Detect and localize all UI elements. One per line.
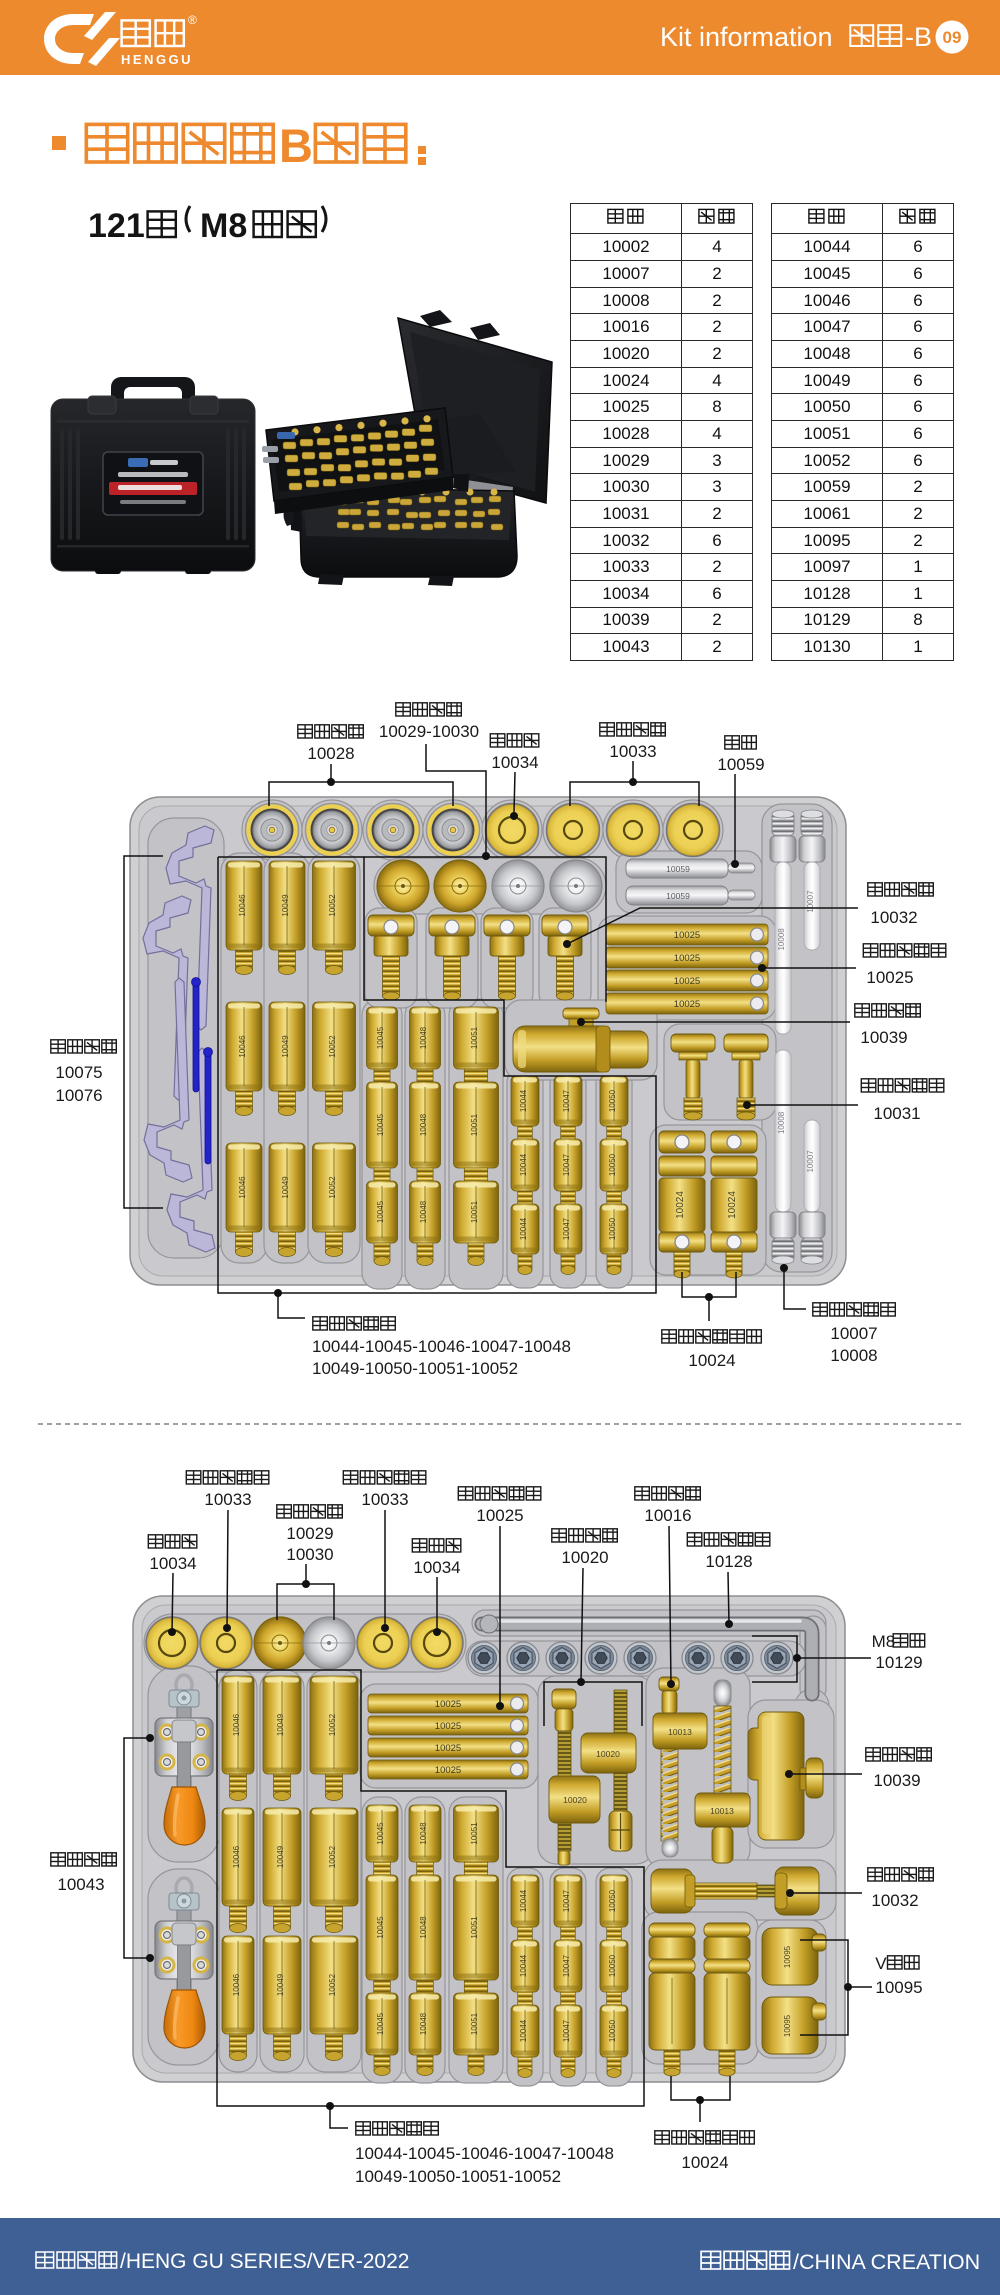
- svg-text:10025: 10025: [435, 1699, 461, 1710]
- svg-text:10034: 10034: [149, 1554, 196, 1573]
- svg-text:10051: 10051: [470, 1026, 479, 1049]
- svg-text:10008: 10008: [777, 928, 786, 951]
- svg-text:10030: 10030: [286, 1545, 333, 1564]
- svg-text:10047: 10047: [562, 1153, 571, 1176]
- svg-text:10049: 10049: [281, 1176, 290, 1199]
- svg-text:10044: 10044: [519, 1217, 528, 1240]
- svg-text:10051: 10051: [470, 1822, 479, 1845]
- svg-text:10049: 10049: [281, 1035, 290, 1058]
- svg-text:10008: 10008: [777, 1111, 786, 1134]
- svg-text:10059: 10059: [666, 864, 690, 874]
- svg-text:10024: 10024: [688, 1351, 735, 1370]
- svg-text:10025: 10025: [674, 976, 700, 987]
- svg-text:10045: 10045: [376, 2012, 385, 2035]
- svg-text:10046: 10046: [232, 1713, 241, 1736]
- svg-text:10013: 10013: [668, 1727, 692, 1737]
- svg-text:10044-10045-10046-10047-10048: 10044-10045-10046-10047-10048: [355, 2144, 614, 2163]
- svg-text:10050: 10050: [608, 1217, 617, 1240]
- svg-text:10050: 10050: [608, 2019, 617, 2042]
- svg-text:10050: 10050: [608, 1153, 617, 1176]
- svg-text:10024: 10024: [681, 2153, 728, 2172]
- svg-text:M8: M8: [200, 207, 247, 245]
- svg-text:10025: 10025: [674, 999, 700, 1010]
- svg-text:10059: 10059: [717, 755, 764, 774]
- svg-text:10048: 10048: [419, 1113, 428, 1136]
- svg-text:10049-10050-10051-10052: 10049-10050-10051-10052: [312, 1359, 518, 1378]
- svg-text:10128: 10128: [705, 1552, 752, 1571]
- svg-text:10045: 10045: [376, 1822, 385, 1845]
- svg-text:10052: 10052: [328, 1035, 337, 1058]
- svg-text:V: V: [875, 1954, 887, 1973]
- svg-text:10025: 10025: [866, 968, 913, 987]
- svg-text:10020: 10020: [563, 1795, 587, 1805]
- svg-text:10095: 10095: [875, 1978, 922, 1997]
- svg-text:B: B: [279, 119, 313, 172]
- svg-text:Kit information: Kit information: [660, 22, 833, 52]
- svg-text:10039: 10039: [873, 1771, 920, 1790]
- svg-text:10045: 10045: [376, 1113, 385, 1136]
- svg-text:HENGGU: HENGGU: [121, 52, 193, 67]
- svg-text:10059: 10059: [666, 891, 690, 901]
- svg-text:/HENG GU SERIES/VER-2022: /HENG GU SERIES/VER-2022: [120, 2250, 409, 2273]
- svg-text:10020: 10020: [596, 1749, 620, 1759]
- svg-text:10046: 10046: [238, 1035, 247, 1058]
- svg-text:10008: 10008: [830, 1346, 877, 1365]
- svg-text:10029-10030: 10029-10030: [379, 722, 479, 741]
- svg-text:10044-10045-10046-10047-10048: 10044-10045-10046-10047-10048: [312, 1337, 571, 1356]
- svg-text:10052: 10052: [328, 1973, 337, 1996]
- svg-text:10025: 10025: [476, 1506, 523, 1525]
- svg-text:10039: 10039: [860, 1028, 907, 1047]
- svg-text:10046: 10046: [232, 1845, 241, 1868]
- svg-text:10044: 10044: [519, 1153, 528, 1176]
- svg-text:10046: 10046: [238, 1176, 247, 1199]
- svg-text:10052: 10052: [328, 1713, 337, 1736]
- svg-text:10025: 10025: [435, 1721, 461, 1732]
- svg-text:10048: 10048: [419, 1916, 428, 1939]
- svg-text:10049-10050-10051-10052: 10049-10050-10051-10052: [355, 2167, 561, 2186]
- svg-text:M8: M8: [872, 1632, 896, 1651]
- svg-text:10048: 10048: [419, 1822, 428, 1845]
- svg-text:10049: 10049: [276, 1973, 285, 1996]
- svg-text:10047: 10047: [562, 1889, 571, 1912]
- svg-text:10051: 10051: [470, 1200, 479, 1223]
- svg-text:10025: 10025: [674, 953, 700, 964]
- svg-text:10033: 10033: [361, 1490, 408, 1509]
- svg-text:10129: 10129: [875, 1653, 922, 1672]
- svg-text:10050: 10050: [608, 1954, 617, 1977]
- svg-text:10020: 10020: [561, 1548, 608, 1567]
- svg-text:10024: 10024: [727, 1191, 738, 1219]
- svg-text:10044: 10044: [519, 1889, 528, 1912]
- svg-text:10075: 10075: [55, 1063, 102, 1082]
- svg-text:10028: 10028: [307, 744, 354, 763]
- svg-text:10048: 10048: [419, 2012, 428, 2035]
- svg-text:10047: 10047: [562, 2019, 571, 2042]
- svg-text:10051: 10051: [470, 1916, 479, 1939]
- svg-text:10033: 10033: [609, 742, 656, 761]
- svg-text:/CHINA CREATION: /CHINA CREATION: [793, 2250, 980, 2274]
- svg-text:10095: 10095: [783, 1945, 792, 1968]
- svg-text:10013: 10013: [710, 1806, 734, 1816]
- svg-text:10051: 10051: [470, 1113, 479, 1136]
- svg-text:10007: 10007: [806, 890, 815, 913]
- svg-text:10043: 10043: [57, 1875, 104, 1894]
- svg-text:10034: 10034: [413, 1558, 460, 1577]
- svg-text:121: 121: [88, 207, 145, 245]
- svg-text:10095: 10095: [783, 2014, 792, 2037]
- svg-text:10024: 10024: [675, 1191, 686, 1219]
- svg-text:10051: 10051: [470, 2012, 479, 2035]
- svg-text:10046: 10046: [232, 1973, 241, 1996]
- svg-text:10029: 10029: [286, 1524, 333, 1543]
- svg-text:10047: 10047: [562, 1089, 571, 1112]
- svg-text:10034: 10034: [491, 753, 538, 772]
- svg-text:10048: 10048: [419, 1026, 428, 1049]
- svg-text:10048: 10048: [419, 1200, 428, 1223]
- svg-text:10052: 10052: [328, 1845, 337, 1868]
- svg-text:10047: 10047: [562, 1217, 571, 1240]
- svg-text:®: ®: [188, 13, 197, 27]
- svg-text:10052: 10052: [328, 1176, 337, 1199]
- svg-text:10045: 10045: [376, 1200, 385, 1223]
- svg-text:10050: 10050: [608, 1889, 617, 1912]
- svg-text:10025: 10025: [435, 1765, 461, 1776]
- svg-text:10050: 10050: [608, 1089, 617, 1112]
- svg-text:10044: 10044: [519, 1954, 528, 1977]
- svg-text:10049: 10049: [276, 1713, 285, 1736]
- svg-text:10007: 10007: [806, 1150, 815, 1173]
- svg-text:09: 09: [943, 28, 962, 47]
- svg-text:10032: 10032: [871, 1891, 918, 1910]
- svg-text:10033: 10033: [204, 1490, 251, 1509]
- svg-text:10007: 10007: [830, 1324, 877, 1343]
- svg-text:10016: 10016: [644, 1506, 691, 1525]
- svg-text:10044: 10044: [519, 1089, 528, 1112]
- svg-text:10045: 10045: [376, 1026, 385, 1049]
- svg-text:10049: 10049: [281, 894, 290, 917]
- svg-text:10049: 10049: [276, 1845, 285, 1868]
- svg-text:10025: 10025: [435, 1743, 461, 1754]
- svg-text:10032: 10032: [870, 908, 917, 927]
- svg-text:10045: 10045: [376, 1916, 385, 1939]
- svg-text:10052: 10052: [328, 894, 337, 917]
- svg-text:10046: 10046: [238, 894, 247, 917]
- svg-text:10047: 10047: [562, 1954, 571, 1977]
- svg-text:10025: 10025: [674, 930, 700, 941]
- svg-text:10076: 10076: [55, 1086, 102, 1105]
- svg-text:-B: -B: [905, 22, 932, 52]
- svg-text:10031: 10031: [873, 1104, 920, 1123]
- svg-text:10044: 10044: [519, 2019, 528, 2042]
